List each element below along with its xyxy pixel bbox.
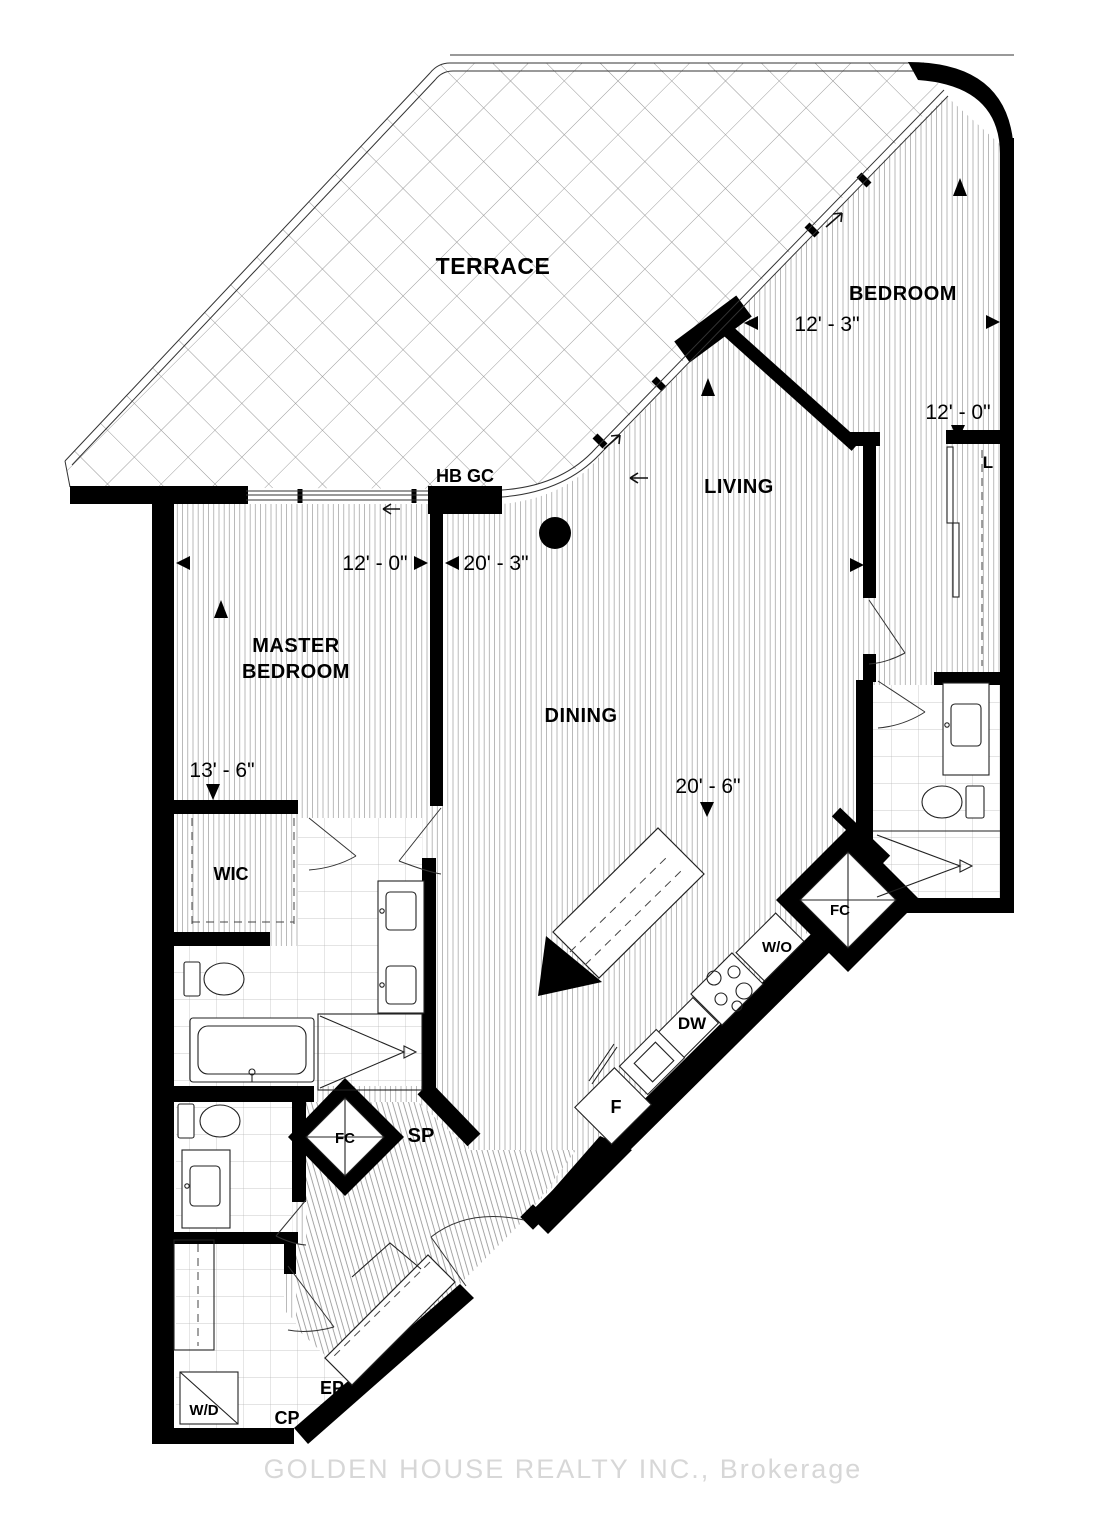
structural-column (539, 517, 571, 549)
label-dishwasher: DW (678, 1014, 707, 1033)
watermark: GOLDEN HOUSE REALTY INC., Brokerage (264, 1454, 863, 1484)
room-label-master-2: BEDROOM (242, 661, 350, 683)
dim-master-width: 12' - 0" (342, 552, 407, 575)
dim-master-depth: 13' - 6" (189, 759, 254, 782)
floor-plan-page: TERRACE BEDROOM LIVING DINING MASTER BED… (0, 0, 1118, 1532)
floor-plan-svg: TERRACE BEDROOM LIVING DINING MASTER BED… (0, 0, 1118, 1532)
vanity (943, 683, 989, 775)
label-sp: SP (408, 1125, 435, 1147)
dim-bedroom-width: 12' - 3" (794, 313, 859, 336)
dim-bedroom-depth: 12' - 0" (925, 401, 990, 424)
room-label-terrace: TERRACE (436, 253, 551, 279)
room-label-master-1: MASTER (252, 635, 340, 657)
label-cp: CP (274, 1408, 299, 1428)
room-label-bedroom: BEDROOM (849, 283, 957, 305)
dim-living-width: 20' - 3" (463, 552, 528, 575)
dim-dining-width: 20' - 6" (675, 775, 740, 798)
label-linen: L (983, 453, 993, 472)
toilet (178, 1104, 240, 1138)
label-washer-dryer: W/D (189, 1402, 218, 1419)
label-fridge: F (611, 1097, 622, 1117)
toilet (184, 962, 244, 996)
label-ep: EP (320, 1378, 344, 1398)
label-fc-hall: FC (335, 1130, 355, 1147)
room-label-living: LIVING (704, 476, 774, 498)
bathtub (190, 1018, 314, 1082)
room-label-dining: DINING (545, 705, 618, 727)
toilet (922, 786, 984, 818)
label-hb-gc: HB GC (436, 466, 494, 486)
label-fc-kitchen: FC (830, 902, 850, 919)
room-label-wic: WIC (214, 864, 249, 884)
label-wall-oven: W/O (762, 939, 792, 956)
vanity (182, 1150, 230, 1228)
double-vanity (378, 881, 424, 1013)
